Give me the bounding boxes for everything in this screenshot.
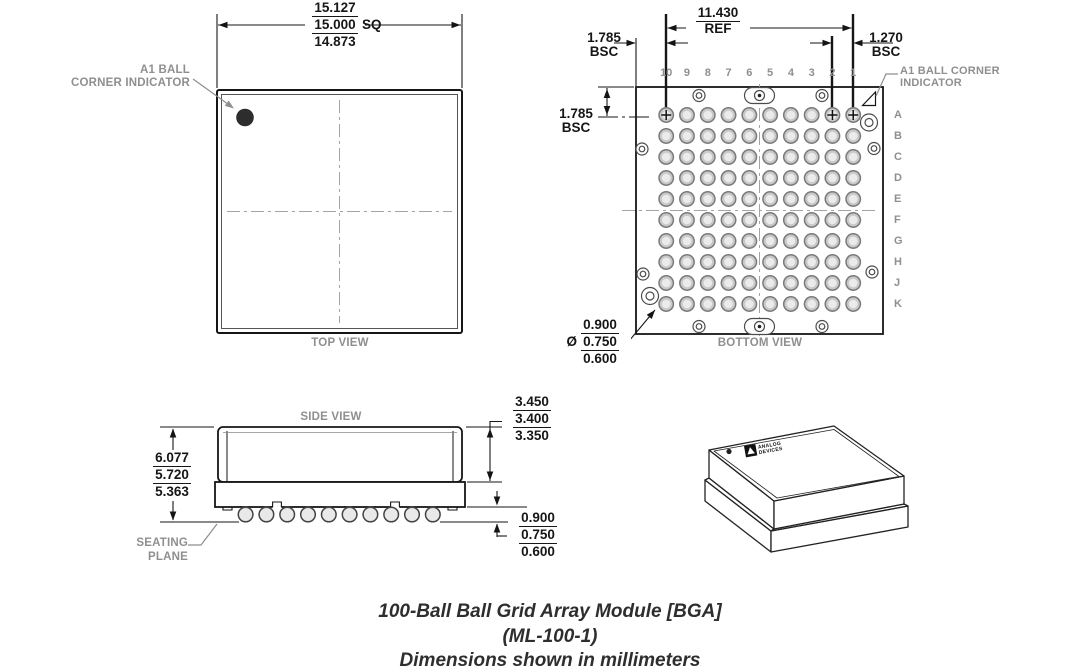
- dim-row: REF: [686, 22, 750, 36]
- dim-edge-offset-top: 1.785 BSC: [574, 31, 634, 59]
- seating-plane-leader: [188, 524, 217, 545]
- column-label-6: 6: [746, 67, 752, 79]
- dim-row: Ø0.750: [569, 334, 631, 351]
- diameter-symbol: Ø: [566, 334, 577, 350]
- dim-row: 5.363: [141, 484, 203, 501]
- row-label-E: E: [894, 193, 901, 205]
- caption-package-code: (ML-100-1): [240, 625, 860, 650]
- column-label-8: 8: [705, 67, 711, 79]
- dim-ball-standoff: 0.900 0.750 0.600: [508, 510, 568, 561]
- dim-row: 15.000SQ: [305, 17, 365, 34]
- row-label-J: J: [894, 277, 900, 289]
- bottom-view-label: BOTTOM VIEW: [700, 337, 820, 350]
- side-view-drawing: [160, 422, 527, 546]
- line-art: ANALOG DEVICES: [0, 0, 1080, 672]
- sq-suffix: SQ: [362, 17, 382, 33]
- dim-overall-height: 6.077 5.720 5.363: [141, 450, 203, 501]
- row-label-F: F: [894, 214, 901, 226]
- dim-row: 15.127: [305, 0, 365, 17]
- dim-row: 0.900: [569, 317, 631, 334]
- row-label-H: H: [894, 256, 902, 268]
- column-label-4: 4: [788, 67, 794, 79]
- row-label-C: C: [894, 151, 902, 163]
- dim-row: 3.400: [502, 411, 562, 428]
- dim-row: 0.900: [508, 510, 568, 527]
- dim-row: 6.077: [141, 450, 203, 467]
- dim-row: 0.750: [508, 527, 568, 544]
- figure-caption: 100-Ball Ball Grid Array Module [BGA] (M…: [240, 600, 860, 672]
- dim-lid-height: 3.450 3.400 3.350: [502, 394, 562, 445]
- dim-package-size: 15.127 15.000SQ 14.873: [305, 0, 365, 51]
- row-label-G: G: [894, 235, 903, 247]
- dim-row: 11.430: [686, 5, 750, 22]
- row-label-D: D: [894, 172, 902, 184]
- a1-ball-corner-indicator-label-top: A1 BALL CORNER INDICATOR: [60, 64, 190, 89]
- side-view-balls: [238, 507, 440, 522]
- dim-ball-pitch: 1.270 BSC: [856, 31, 916, 59]
- bga-dimension-drawing: ANALOG DEVICES 15.127 15.000SQ 14.873 A1…: [0, 0, 1080, 672]
- column-label-10: 10: [660, 67, 672, 79]
- top-view-label: TOP VIEW: [280, 337, 400, 350]
- column-label-5: 5: [767, 67, 773, 79]
- a1-ball-corner-indicator-label-bottom: A1 BALL CORNER INDICATOR: [900, 66, 1050, 89]
- row-label-K: K: [894, 298, 902, 310]
- dim-row: 14.873: [305, 34, 365, 51]
- dim-row: 5.720: [141, 467, 203, 484]
- dim-ball-span: 11.430 REF: [686, 5, 750, 36]
- column-label-9: 9: [684, 67, 690, 79]
- column-label-3: 3: [809, 67, 815, 79]
- column-label-7: 7: [725, 67, 731, 79]
- dim-ball-diameter: 0.900 Ø0.750 0.600: [569, 317, 631, 368]
- row-label-A: A: [894, 109, 902, 121]
- row-label-B: B: [894, 130, 902, 142]
- iso-view-drawing: ANALOG DEVICES: [705, 426, 908, 552]
- dim-row: 3.450: [502, 394, 562, 411]
- dim-row: 0.600: [569, 351, 631, 368]
- column-label-2: 2: [829, 67, 835, 79]
- dim-edge-offset-left: 1.785 BSC: [548, 107, 604, 135]
- top-view-drawing: [193, 14, 462, 333]
- side-view-label: SIDE VIEW: [271, 411, 391, 424]
- seating-plane-label: SEATING PLANE: [118, 537, 188, 564]
- column-label-1: 1: [850, 67, 856, 79]
- dim-row: 0.600: [508, 544, 568, 561]
- iso-pin1-dot: [726, 449, 731, 454]
- caption-units-note: Dimensions shown in millimeters: [240, 649, 860, 672]
- caption-title: 100-Ball Ball Grid Array Module [BGA]: [240, 600, 860, 625]
- a1-ball-corner-dot: [236, 109, 254, 127]
- dim-row: 3.350: [502, 428, 562, 445]
